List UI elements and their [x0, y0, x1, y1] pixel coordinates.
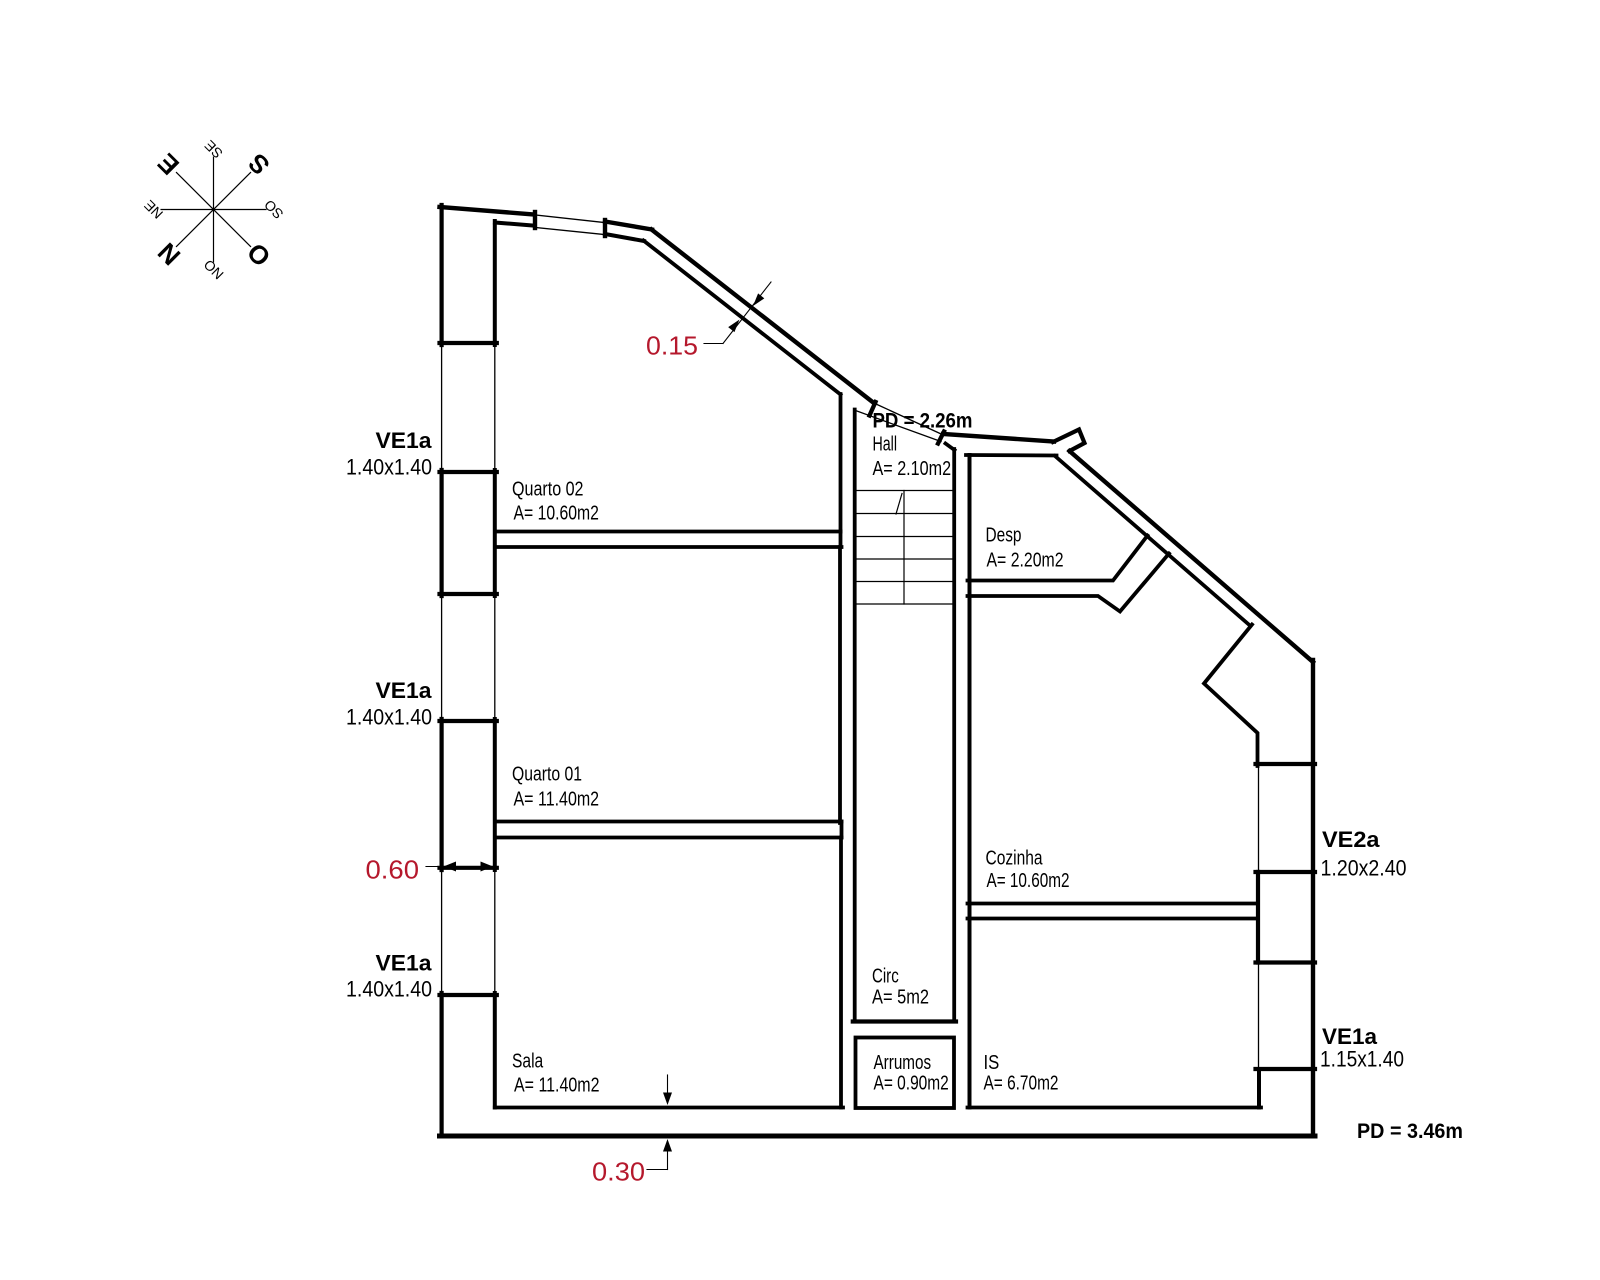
- svg-text:VE1a: VE1a: [1322, 1024, 1378, 1049]
- svg-text:VE1a: VE1a: [376, 951, 433, 976]
- svg-text:1.40x1.40: 1.40x1.40: [346, 455, 432, 480]
- svg-text:VE1a: VE1a: [376, 428, 433, 453]
- svg-text:Quarto 02: Quarto 02: [512, 479, 584, 501]
- svg-text:A= 2.10m2: A= 2.10m2: [873, 458, 952, 480]
- svg-text:Arrumos: Arrumos: [874, 1052, 932, 1074]
- svg-text:Hall: Hall: [873, 434, 898, 456]
- svg-text:1.40x1.40: 1.40x1.40: [346, 705, 432, 730]
- svg-text:A= 6.70m2: A= 6.70m2: [984, 1073, 1059, 1095]
- svg-text:A= 5m2: A= 5m2: [872, 987, 929, 1009]
- svg-text:PD = 2.26m: PD = 2.26m: [873, 410, 973, 433]
- svg-text:Sala: Sala: [512, 1051, 544, 1073]
- svg-text:Desp: Desp: [986, 525, 1022, 547]
- svg-text:A= 0.90m2: A= 0.90m2: [874, 1073, 949, 1095]
- svg-text:A= 11.40m2: A= 11.40m2: [514, 1075, 600, 1097]
- svg-text:A= 10.60m2: A= 10.60m2: [514, 503, 599, 525]
- svg-text:0.60: 0.60: [366, 855, 420, 885]
- svg-text:A= 2.20m2: A= 2.20m2: [987, 550, 1064, 572]
- svg-text:A= 10.60m2: A= 10.60m2: [987, 870, 1070, 892]
- svg-text:VE1a: VE1a: [376, 678, 433, 703]
- svg-text:VE2a: VE2a: [1322, 827, 1380, 852]
- svg-text:0.30: 0.30: [592, 1157, 645, 1187]
- svg-text:PD = 3.46m: PD = 3.46m: [1357, 1120, 1463, 1143]
- svg-text:1.40x1.40: 1.40x1.40: [346, 977, 432, 1002]
- svg-text:A= 11.40m2: A= 11.40m2: [514, 789, 600, 811]
- svg-text:1.20x2.40: 1.20x2.40: [1321, 856, 1407, 881]
- svg-text:Circ: Circ: [872, 966, 899, 988]
- svg-text:Quarto 01: Quarto 01: [512, 764, 582, 786]
- svg-text:Cozinha: Cozinha: [986, 848, 1044, 870]
- svg-text:1.15x1.40: 1.15x1.40: [1320, 1047, 1404, 1072]
- svg-text:0.15: 0.15: [646, 331, 698, 361]
- svg-text:IS: IS: [984, 1052, 1000, 1074]
